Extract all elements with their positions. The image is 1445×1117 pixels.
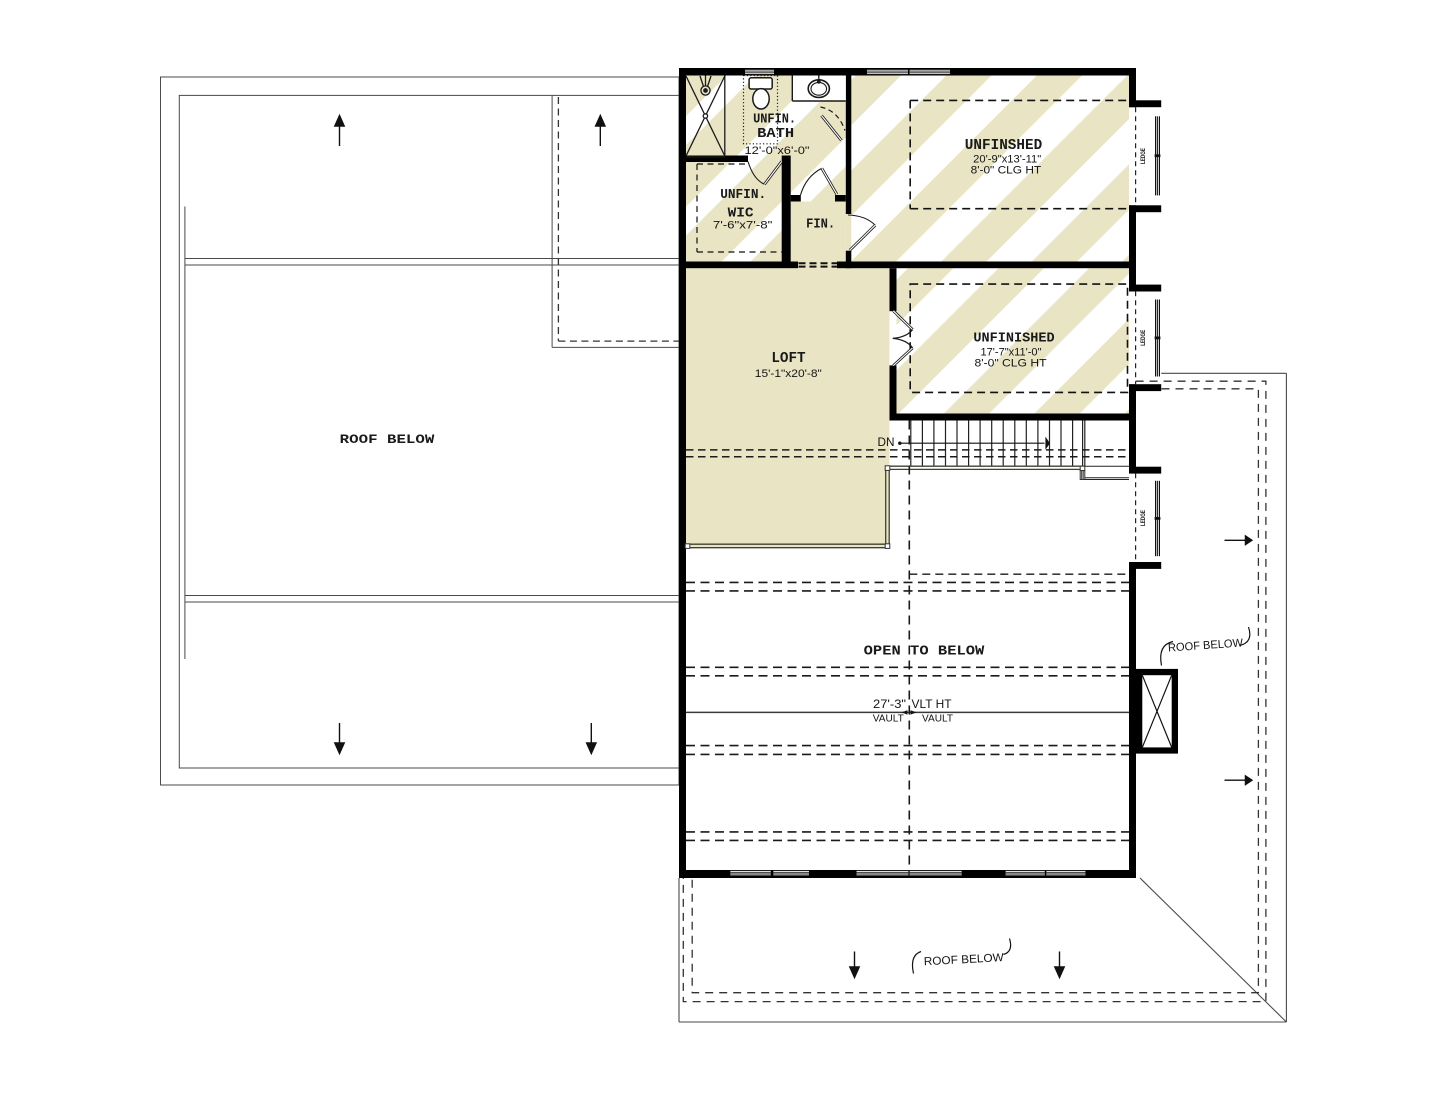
svg-text:UNFINISHED: UNFINISHED [973,331,1054,347]
svg-text:ROOF BELOW: ROOF BELOW [340,432,435,447]
svg-text:8'-0" CLG HT: 8'-0" CLG HT [975,358,1047,370]
svg-text:VAULT: VAULT [873,714,904,725]
svg-text:12'-0"x6'-0": 12'-0"x6'-0" [745,145,810,157]
svg-text:FIN.: FIN. [806,218,835,233]
svg-text:UNFIN.: UNFIN. [753,112,796,127]
svg-text:UNFIN.: UNFIN. [720,188,766,203]
svg-text:LEDGE: LEDGE [1140,148,1147,164]
svg-text:8'-0" CLG HT: 8'-0" CLG HT [971,164,1042,176]
svg-text:LOFT: LOFT [771,350,805,367]
svg-text:VLT HT: VLT HT [912,697,953,711]
svg-text:OPEN TO BELOW: OPEN TO BELOW [864,644,985,660]
svg-text:LEDGE: LEDGE [1140,329,1147,345]
svg-text:7'-6"x7'-8": 7'-6"x7'-8" [713,220,773,232]
svg-text:DN: DN [878,437,895,449]
svg-text:UNFINSHED: UNFINSHED [965,138,1043,154]
svg-text:15'-1"x20'-8": 15'-1"x20'-8" [755,368,822,380]
svg-text:BATH: BATH [757,127,794,142]
svg-text:VAULT: VAULT [922,714,953,725]
svg-text:27'-3": 27'-3" [873,697,906,711]
svg-text:LEDGE: LEDGE [1140,510,1147,526]
